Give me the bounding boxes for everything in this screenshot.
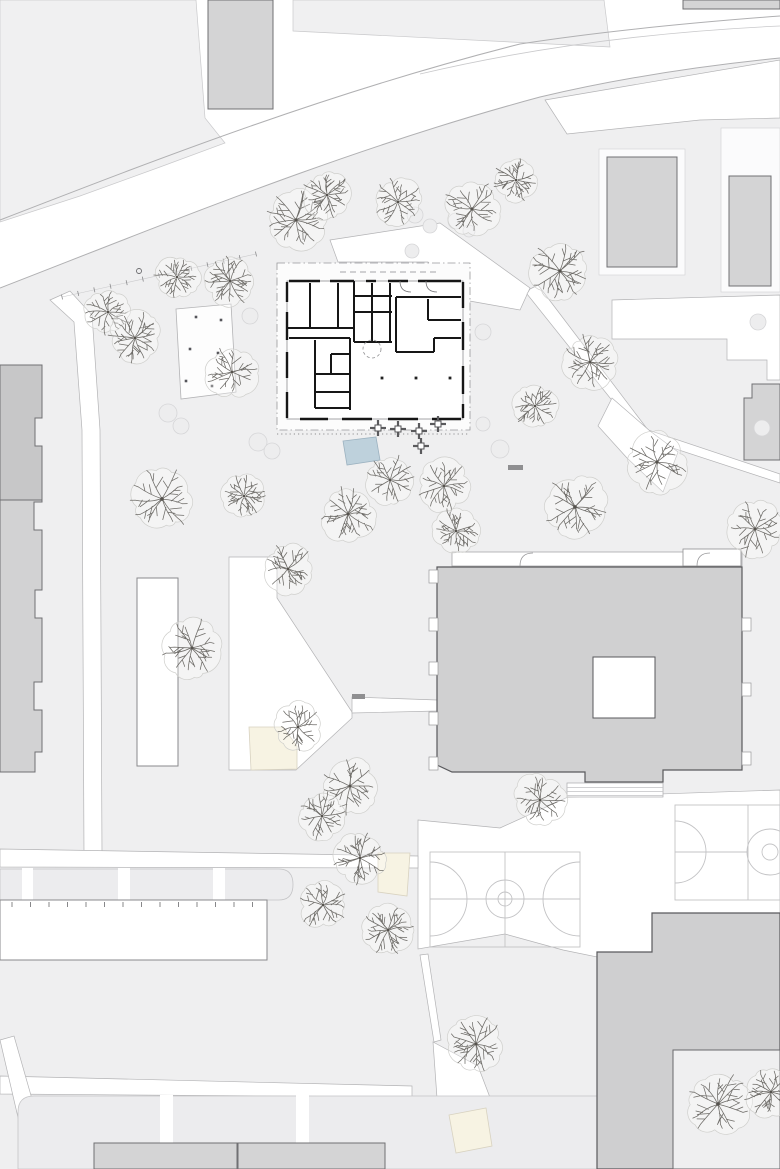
path-spur	[352, 697, 437, 713]
floor-plan	[277, 263, 470, 454]
building-bottom-j1	[94, 1143, 237, 1169]
tree	[688, 1074, 753, 1134]
building-top-left	[208, 0, 273, 109]
shrub	[405, 244, 419, 258]
shrub	[491, 440, 509, 458]
gym-building	[437, 567, 742, 782]
building-north-c	[729, 176, 771, 286]
shrub	[242, 308, 258, 324]
building-bottom-j2	[238, 1143, 385, 1169]
tree	[301, 880, 345, 927]
site-plan	[0, 0, 780, 1169]
shrub	[423, 219, 437, 233]
shrub	[159, 404, 177, 422]
building-top-corner-strip	[683, 0, 780, 9]
shrub	[476, 417, 490, 431]
shrub	[754, 420, 770, 436]
shrub	[475, 324, 491, 340]
site-plan-svg	[0, 0, 780, 1169]
shrub	[750, 314, 766, 330]
shrub	[264, 443, 280, 459]
building-southeast	[597, 913, 780, 1169]
building-outline-f	[0, 900, 267, 960]
shrub	[173, 418, 189, 434]
gym-hall	[429, 549, 751, 797]
building-north-b	[607, 157, 677, 267]
